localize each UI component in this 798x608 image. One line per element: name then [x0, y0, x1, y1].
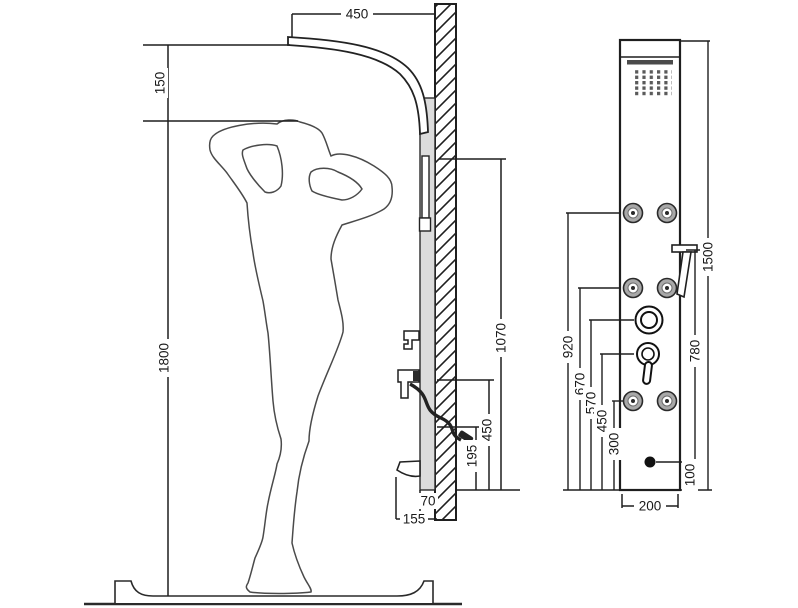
slider-block	[420, 218, 431, 231]
wall-section	[435, 4, 456, 520]
dim-hose-height-label: 450	[480, 419, 495, 442]
dim-spout-outlet-height: 100	[682, 459, 698, 491]
figure-silhouette	[210, 120, 393, 594]
dim-figure-height: 1800	[156, 339, 172, 377]
body-jet	[624, 204, 643, 223]
dim-arm-projection-label: 450	[346, 7, 369, 22]
body-jet	[624, 392, 643, 411]
figure-body-outline	[210, 120, 393, 594]
diagram-canvas: 150 1800 450 1070 450 195	[0, 0, 798, 608]
dim-panel-depth-label: 70	[420, 494, 435, 509]
shower-panel-dimension-diagram: 150 1800 450 1070 450 195	[0, 0, 798, 608]
dim-spout-projection-label: 155	[403, 512, 426, 527]
dim-spout-projection: 155	[400, 511, 428, 527]
body-jet	[658, 204, 677, 223]
body-jet	[624, 279, 643, 298]
dim-handshower-height: 780	[687, 335, 703, 367]
dim-panel-height: 1500	[700, 238, 716, 276]
dim-hose-height: 450	[479, 414, 495, 446]
body-jet	[658, 392, 677, 411]
dim-arm-projection: 450	[341, 6, 373, 22]
dim-figure-height-label: 1800	[157, 343, 172, 373]
dim-handshower-label: 780	[688, 340, 703, 363]
spout-side	[397, 461, 420, 476]
slider-rail	[422, 156, 429, 218]
dim-jets-bottom-label: 300	[607, 433, 622, 456]
dim-handshower-rest-label: 195	[465, 445, 480, 468]
dim-panel-height-label: 1500	[701, 242, 716, 272]
dim-rail-drop: 1070	[493, 319, 509, 357]
dim-jets-top-label: 920	[561, 336, 576, 359]
dim-handshower-rest: 195	[464, 440, 480, 472]
mixer-body-side	[413, 371, 419, 381]
dim-panel-width: 200	[634, 498, 666, 514]
shower-arm	[288, 37, 428, 134]
showerhead-nozzle-grid	[632, 70, 672, 97]
dim-spout-outlet-label: 100	[683, 464, 698, 487]
dim-panel-width-label: 200	[639, 499, 662, 514]
panel-front	[620, 40, 680, 490]
dim-panel-depth: 70	[418, 493, 438, 509]
dim-jets-bottom-height: 300	[606, 428, 622, 460]
body-jet	[658, 279, 677, 298]
diverter-front	[636, 307, 663, 334]
dim-head-clearance-label: 150	[153, 72, 168, 95]
dim-head-clearance: 150	[152, 68, 168, 98]
spout-outlet-front	[645, 457, 656, 468]
dim-jets-top-height: 920	[560, 331, 576, 363]
dim-rail-drop-label: 1070	[494, 323, 509, 353]
showerhead-bar	[627, 60, 673, 65]
diverter-knob-side	[404, 331, 419, 349]
